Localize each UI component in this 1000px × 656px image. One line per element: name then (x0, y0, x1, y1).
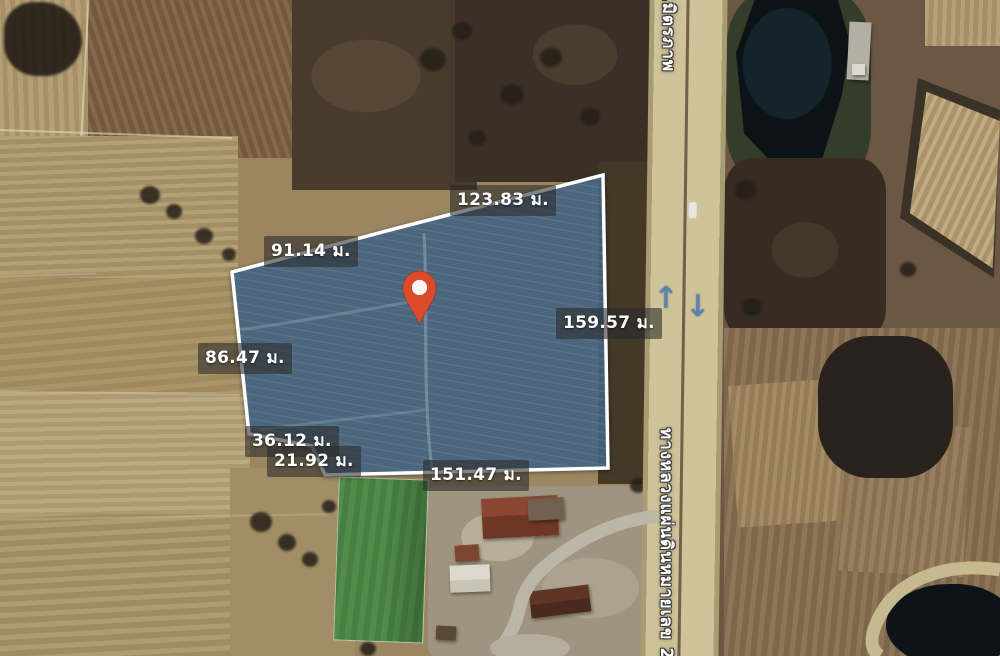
satellite-map-canvas[interactable]: ↑ ↓ ถ.มิตรภาพ ทางหลวงแผ่นดินหมายเลข 2 (0, 0, 1000, 656)
measurement-label-left: 86.47 ม. (198, 343, 292, 374)
pond-berm-road (872, 568, 1000, 656)
measurement-label-top-left: 91.14 ม. (264, 236, 358, 267)
measurement-label-notch-lower: 21.92 ม. (267, 446, 361, 477)
plot-overlay (0, 0, 1000, 656)
measurement-label-right: 159.57 ม. (556, 308, 662, 339)
measurement-label-bottom: 151.47 ม. (423, 460, 529, 491)
measurement-label-top-right: 123.83 ม. (450, 185, 556, 216)
